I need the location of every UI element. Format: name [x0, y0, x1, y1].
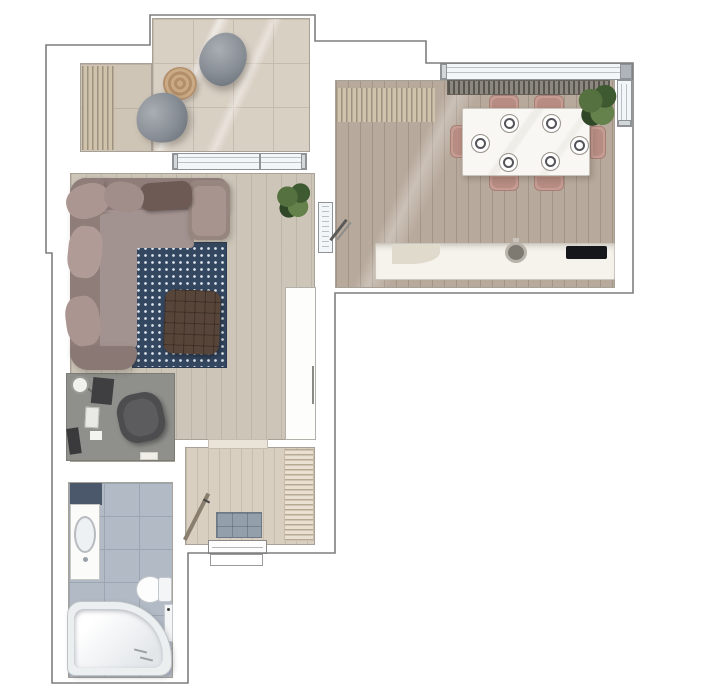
kitchen-plant — [578, 84, 620, 128]
window-frame-cap-right — [301, 154, 306, 169]
chair-cushion — [593, 129, 603, 156]
tall-cabinet — [285, 287, 316, 440]
kitchen-striped-mat — [336, 88, 435, 122]
kitchen-window-corner-block — [620, 64, 632, 79]
balcony-striped-mat — [82, 66, 114, 150]
kitchen-window-top-lines — [444, 67, 629, 76]
desk-lamp — [71, 376, 89, 394]
cooktop — [566, 246, 607, 259]
place-setting-plate — [499, 153, 518, 172]
interior-window — [318, 202, 333, 253]
balcony-window — [172, 153, 307, 170]
vanity — [70, 504, 100, 580]
sofa-chaise-cushion — [192, 186, 226, 236]
basin-faucet — [83, 557, 88, 562]
basin — [74, 516, 96, 553]
interior-window-lines — [322, 206, 329, 249]
place-setting-plate — [542, 114, 561, 133]
chair-cushion — [492, 177, 516, 188]
living-room-plant — [276, 183, 314, 219]
entrance-door-line — [212, 547, 263, 548]
monitor — [91, 377, 115, 405]
place-setting-plate — [500, 114, 519, 133]
place-setting-plate — [471, 134, 490, 153]
window-frame-cap-left — [173, 154, 178, 169]
kitchen-window-cap-left — [441, 64, 447, 79]
hall-runner-rug — [284, 449, 314, 541]
window-glazing-lines — [176, 157, 303, 166]
kitchen-window-right-lines — [621, 84, 628, 123]
dining-chair-right — [590, 126, 606, 159]
wall-panel-dot — [167, 608, 170, 611]
dining-chair-bottom-1 — [489, 174, 519, 191]
entrance-doormat — [210, 554, 263, 566]
place-setting-plate — [541, 152, 560, 171]
sink-faucet — [513, 238, 519, 242]
dining-table — [462, 108, 590, 176]
office-chair-seat — [121, 396, 162, 439]
sofa-seats-left — [100, 214, 137, 348]
entrance-door — [208, 540, 267, 554]
keyboard — [84, 407, 99, 429]
desk-papers — [90, 431, 102, 440]
cabinet-handle — [312, 366, 314, 404]
sofa-headrest-pillow — [139, 180, 193, 212]
bath-dark-shelf — [70, 483, 102, 505]
sink — [505, 242, 527, 263]
knitted-ottoman — [163, 289, 221, 355]
dining-chair-bottom-2 — [534, 174, 564, 191]
place-setting-plate — [570, 136, 589, 155]
chair-cushion — [537, 177, 561, 188]
shoe-cabinet — [216, 512, 262, 538]
toilet-tank — [158, 577, 172, 602]
sofa-armrest-bottom — [70, 346, 137, 370]
floor-paper — [140, 452, 158, 460]
kitchen-window-top — [440, 63, 633, 80]
window-mullion — [259, 154, 261, 169]
door-threshold — [208, 439, 268, 449]
floor-plan — [0, 0, 724, 700]
